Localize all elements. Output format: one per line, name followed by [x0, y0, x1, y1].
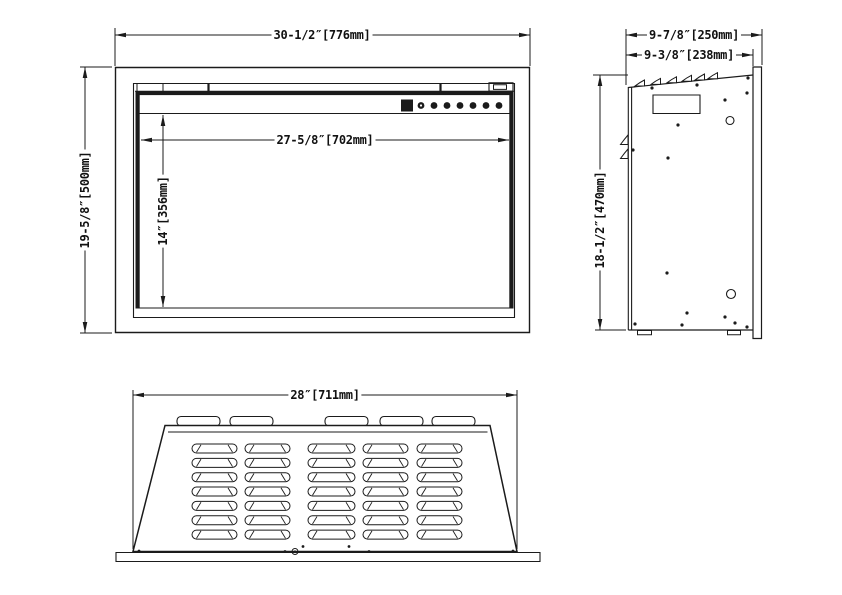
- front-dimension-lines: [80, 28, 530, 333]
- mounting-tab-icon: [621, 135, 629, 145]
- dim-label-front-overall-width: 30-1/2″[776mm]: [272, 28, 373, 42]
- mounting-tab-icon: [708, 73, 718, 79]
- screw-hole: [695, 83, 698, 86]
- power-indicator-dot: [420, 104, 422, 106]
- screw-hole: [138, 550, 141, 553]
- dim-label-side-overall-depth: 9-7/8″[250mm]: [647, 28, 741, 42]
- top-foot-pad: [380, 417, 423, 427]
- front-inner-frame: [134, 84, 515, 318]
- control-panel: [401, 100, 502, 112]
- top-feet: [177, 417, 475, 427]
- front-view: [80, 28, 530, 333]
- front-outer-flange: [116, 68, 530, 333]
- technical-drawing: [0, 0, 842, 595]
- side-junction-plate: [653, 95, 700, 114]
- screw-hole: [745, 325, 748, 328]
- side-view: [593, 29, 762, 339]
- control-button: [444, 102, 451, 109]
- side-knockout-bottom: [727, 290, 736, 299]
- screw-hole: [302, 545, 305, 548]
- side-screw-holes: [631, 76, 749, 328]
- side-front-flange: [753, 67, 762, 339]
- mounting-tab-icon: [621, 149, 629, 159]
- screw-hole: [633, 322, 636, 325]
- control-display: [401, 100, 413, 112]
- dim-label-front-opening-width: 27-5/8″[702mm]: [275, 133, 376, 147]
- drawing-canvas: 30-1/2″[776mm] 19-5/8″[500mm] 27-5/8″[70…: [0, 0, 842, 595]
- dim-label-side-body-depth: 9-3/8″[238mm]: [642, 48, 736, 62]
- screw-hole: [745, 91, 748, 94]
- screw-hole: [733, 321, 736, 324]
- screw-hole: [631, 148, 634, 151]
- side-knockout-top: [726, 117, 734, 125]
- screw-hole: [746, 76, 749, 79]
- control-button: [457, 102, 464, 109]
- dim-label-top-width: 28″[711mm]: [288, 388, 361, 402]
- mounting-tab-icon: [651, 78, 661, 84]
- front-glass-left-trim: [136, 95, 140, 308]
- screw-hole: [680, 323, 683, 326]
- top-foot-pad: [230, 417, 273, 427]
- screw-hole: [368, 550, 371, 553]
- side-foot-left: [638, 331, 652, 335]
- screw-hole: [348, 545, 351, 548]
- top-baseplate: [116, 553, 540, 562]
- top-foot-pad: [432, 417, 475, 427]
- front-switch-housing: [489, 83, 513, 91]
- front-glass-top-band: [136, 92, 514, 96]
- side-mounting-tabs: [621, 73, 718, 159]
- screw-hole: [666, 156, 669, 159]
- screw-hole: [723, 315, 726, 318]
- screw-hole: [685, 311, 688, 314]
- control-button: [483, 102, 490, 109]
- screw-hole: [512, 550, 515, 553]
- front-switch-button: [494, 85, 507, 90]
- front-glass-right-trim: [509, 95, 513, 308]
- mounting-tab-icon: [695, 74, 705, 80]
- mounting-tab-icon: [667, 77, 677, 83]
- control-button: [431, 102, 438, 109]
- control-button: [470, 102, 477, 109]
- side-dimension-lines: [593, 29, 762, 330]
- top-view: [116, 390, 540, 562]
- screw-hole: [723, 98, 726, 101]
- front-top-vent-strip: [135, 83, 514, 91]
- side-foot-right: [728, 331, 741, 335]
- screw-hole: [665, 271, 668, 274]
- screw-hole: [650, 86, 653, 89]
- top-foot-pad: [177, 417, 220, 427]
- dim-label-side-height: 18-1/2″[470mm]: [593, 170, 607, 271]
- mounting-tab-icon: [635, 80, 645, 86]
- control-button: [496, 102, 503, 109]
- screw-hole: [676, 123, 679, 126]
- screw-hole: [284, 550, 287, 553]
- top-foot-pad: [325, 417, 368, 427]
- mounting-tab-icon: [682, 75, 692, 81]
- dim-label-front-overall-height: 19-5/8″[500mm]: [78, 150, 92, 251]
- dim-label-front-opening-height: 14″[356mm]: [156, 174, 170, 247]
